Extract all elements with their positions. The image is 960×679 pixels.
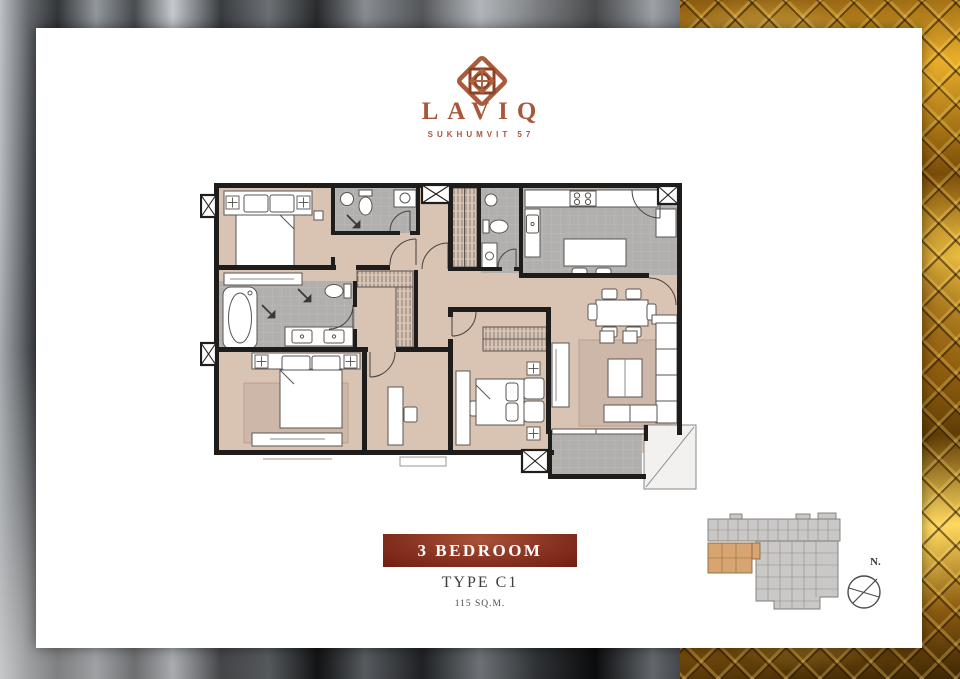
unit-type-label: TYPE C1: [383, 574, 577, 592]
compass-icon: N.: [840, 556, 898, 618]
floor-plan: [200, 179, 700, 491]
brand-name: LAVIQ: [36, 98, 922, 126]
ac-ledge: [644, 425, 696, 489]
unit-area-label: 115 SQ.M.: [383, 599, 577, 609]
bedroom-banner: 3 BEDROOM: [383, 534, 577, 567]
building-key-plan: [700, 505, 850, 617]
brochure-card: LAVIQ SUKHUMVIT 57: [36, 28, 922, 648]
brand-tagline: SUKHUMVIT 57: [36, 130, 922, 139]
